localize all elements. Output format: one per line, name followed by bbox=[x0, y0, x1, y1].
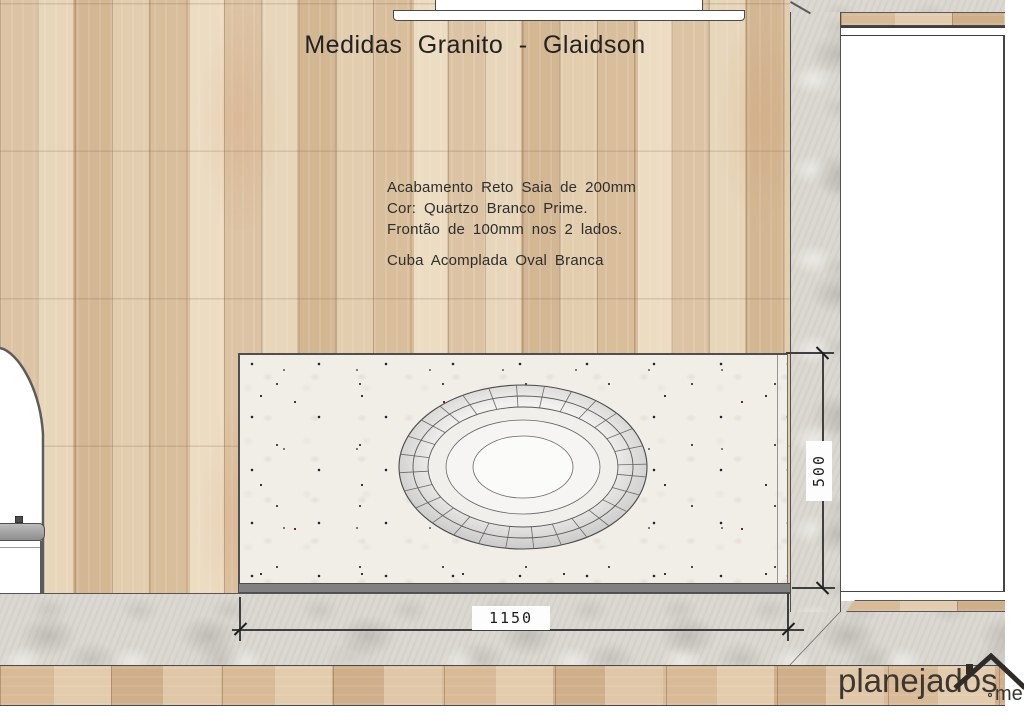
note-sink: Cuba Acomplada Oval Branca bbox=[387, 250, 717, 271]
note-finish: Acabamento Reto Saia de 200mm bbox=[387, 177, 717, 198]
vanity-cabinet-front bbox=[0, 541, 42, 593]
extension-line-top bbox=[786, 352, 834, 354]
counter-skirt-edge bbox=[238, 583, 791, 593]
width-dimension-label: 1150 bbox=[472, 606, 550, 630]
counter-side-splash-line bbox=[777, 355, 778, 583]
right-wood-band-top bbox=[841, 13, 1005, 26]
note-spacer bbox=[387, 240, 717, 250]
right-wood-band-bottom bbox=[846, 600, 1005, 612]
right-baseboard-strip bbox=[841, 593, 1005, 601]
page-margin-bottom bbox=[0, 706, 1024, 726]
extension-line-left bbox=[239, 597, 241, 641]
annotation-block: Acabamento Reto Saia de 200mm Cor: Quart… bbox=[387, 177, 717, 271]
depth-dimension-label: 500 bbox=[806, 441, 832, 501]
right-molding-band bbox=[841, 26, 1005, 36]
stone-column bbox=[790, 12, 841, 612]
oval-sink bbox=[392, 376, 654, 558]
note-front: Frontão de 100mm nos 2 lados. bbox=[387, 219, 717, 240]
granite-measure-drawing: planejados me 1150 500 Medidas Granito -… bbox=[0, 0, 1024, 726]
extension-line-right bbox=[787, 593, 789, 641]
planejados-logo: planejados me bbox=[836, 658, 1024, 706]
vanity-handle bbox=[15, 516, 23, 523]
vanity-countertop bbox=[0, 523, 45, 541]
logo-dot-icon bbox=[988, 693, 992, 697]
adjacent-white-wall bbox=[841, 36, 1005, 592]
extension-line-bottom bbox=[792, 587, 835, 589]
logo-tld-text: me bbox=[995, 683, 1023, 706]
cornice-lower bbox=[393, 10, 745, 21]
page-margin-right bbox=[1005, 0, 1024, 726]
drawing-title: Medidas Granito - Glaidson bbox=[240, 31, 710, 60]
note-color: Cor: Quartzo Branco Prime. bbox=[387, 198, 717, 219]
